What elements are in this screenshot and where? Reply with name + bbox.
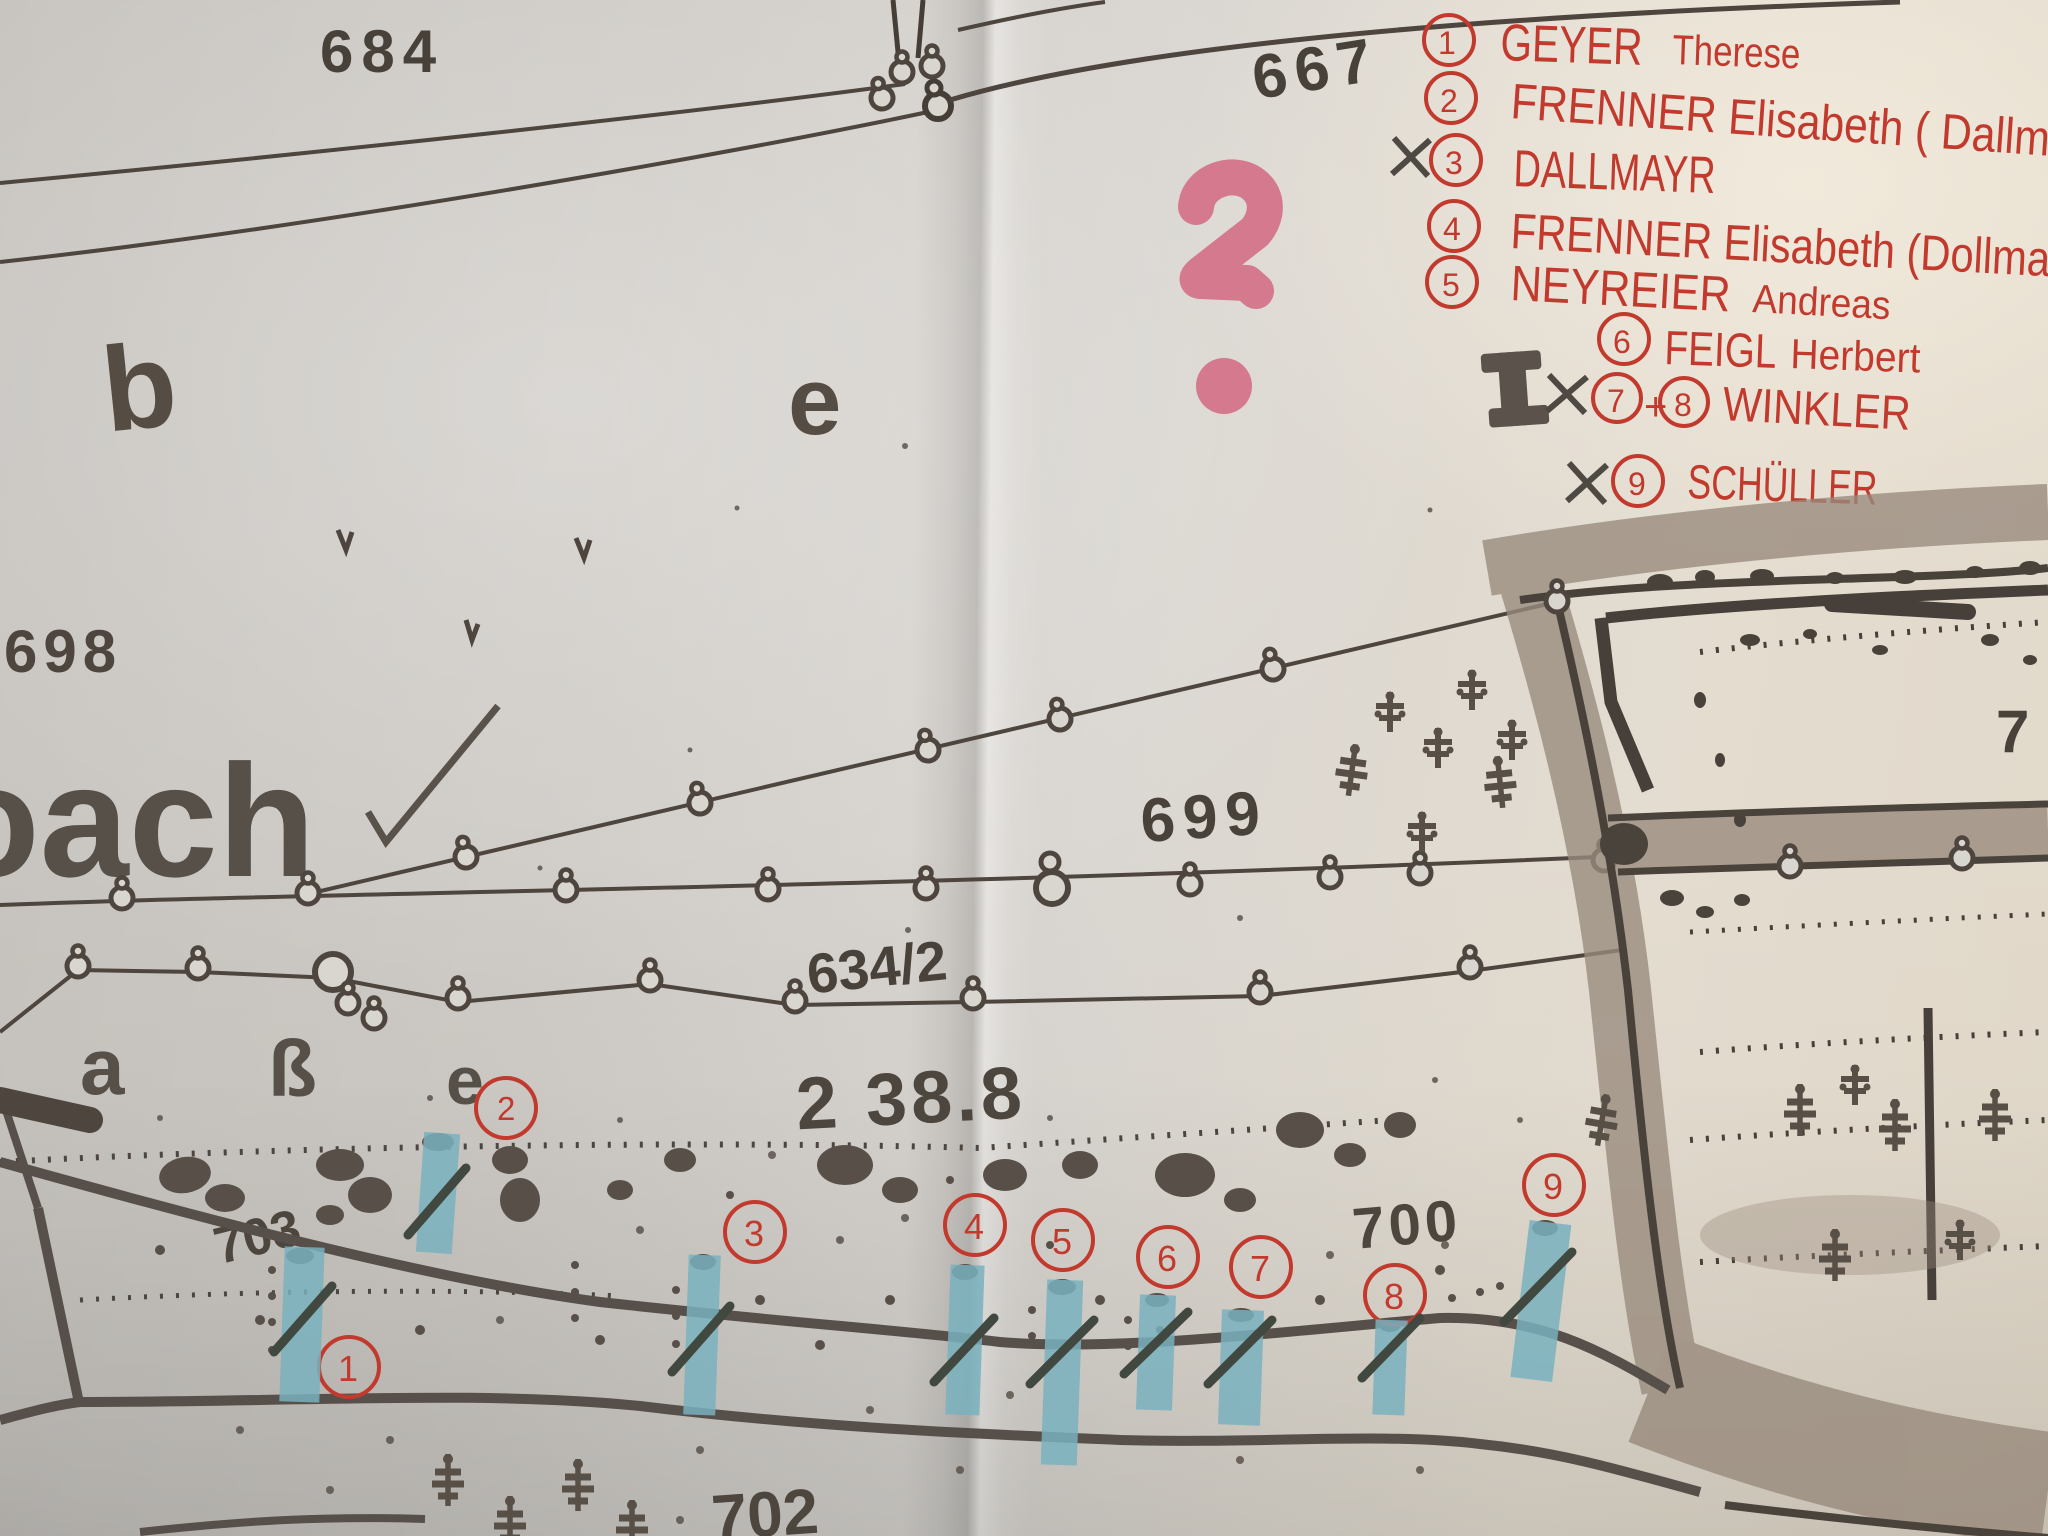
svg-text:702: 702	[709, 1475, 821, 1536]
svg-text:2: 2	[1440, 83, 1458, 119]
svg-text:684: 684	[320, 18, 444, 85]
svg-text:b: b	[96, 317, 183, 458]
svg-text:6: 6	[1157, 1238, 1177, 1279]
svg-text:FEIGL: FEIGL	[1664, 322, 1778, 379]
svg-text:GEYER: GEYER	[1500, 14, 1644, 77]
svg-text:667: 667	[1247, 25, 1384, 113]
svg-text:7: 7	[1607, 383, 1625, 419]
svg-text:700: 700	[1350, 1188, 1464, 1262]
svg-text:698: 698	[4, 618, 122, 685]
svg-text:oach: oach	[0, 731, 315, 910]
svg-text:WINKLER: WINKLER	[1721, 378, 1912, 441]
svg-text:2 38.8: 2 38.8	[794, 1050, 1028, 1145]
svg-text:634/2: 634/2	[804, 928, 950, 1005]
svg-text:e: e	[788, 348, 841, 455]
svg-text:9: 9	[1628, 466, 1646, 502]
svg-text:3: 3	[1445, 145, 1463, 181]
svg-text:Herbert: Herbert	[1790, 330, 1922, 382]
svg-text:DALLMAYR: DALLMAYR	[1513, 140, 1717, 205]
svg-text:Andreas: Andreas	[1752, 277, 1892, 328]
svg-text:5: 5	[1052, 1221, 1072, 1262]
svg-text:8: 8	[1384, 1276, 1404, 1317]
svg-text:8: 8	[1674, 387, 1692, 423]
svg-text:9: 9	[1543, 1166, 1563, 1207]
svg-text:6: 6	[1613, 324, 1631, 360]
svg-text:7: 7	[1250, 1248, 1270, 1289]
svg-text:a: a	[80, 1022, 125, 1111]
svg-text:1: 1	[1438, 25, 1456, 61]
svg-text:4: 4	[1443, 211, 1461, 247]
svg-text:2: 2	[497, 1090, 515, 1127]
svg-text:Therese: Therese	[1672, 26, 1802, 77]
svg-text:ß: ß	[268, 1024, 317, 1113]
svg-text:4: 4	[964, 1206, 984, 1247]
svg-text:699: 699	[1138, 778, 1270, 856]
svg-text:7: 7	[1996, 698, 2029, 765]
svg-text:e: e	[446, 1043, 484, 1119]
svg-text:3: 3	[744, 1213, 764, 1254]
svg-text:1: 1	[338, 1348, 358, 1389]
svg-text:5: 5	[1442, 267, 1460, 303]
